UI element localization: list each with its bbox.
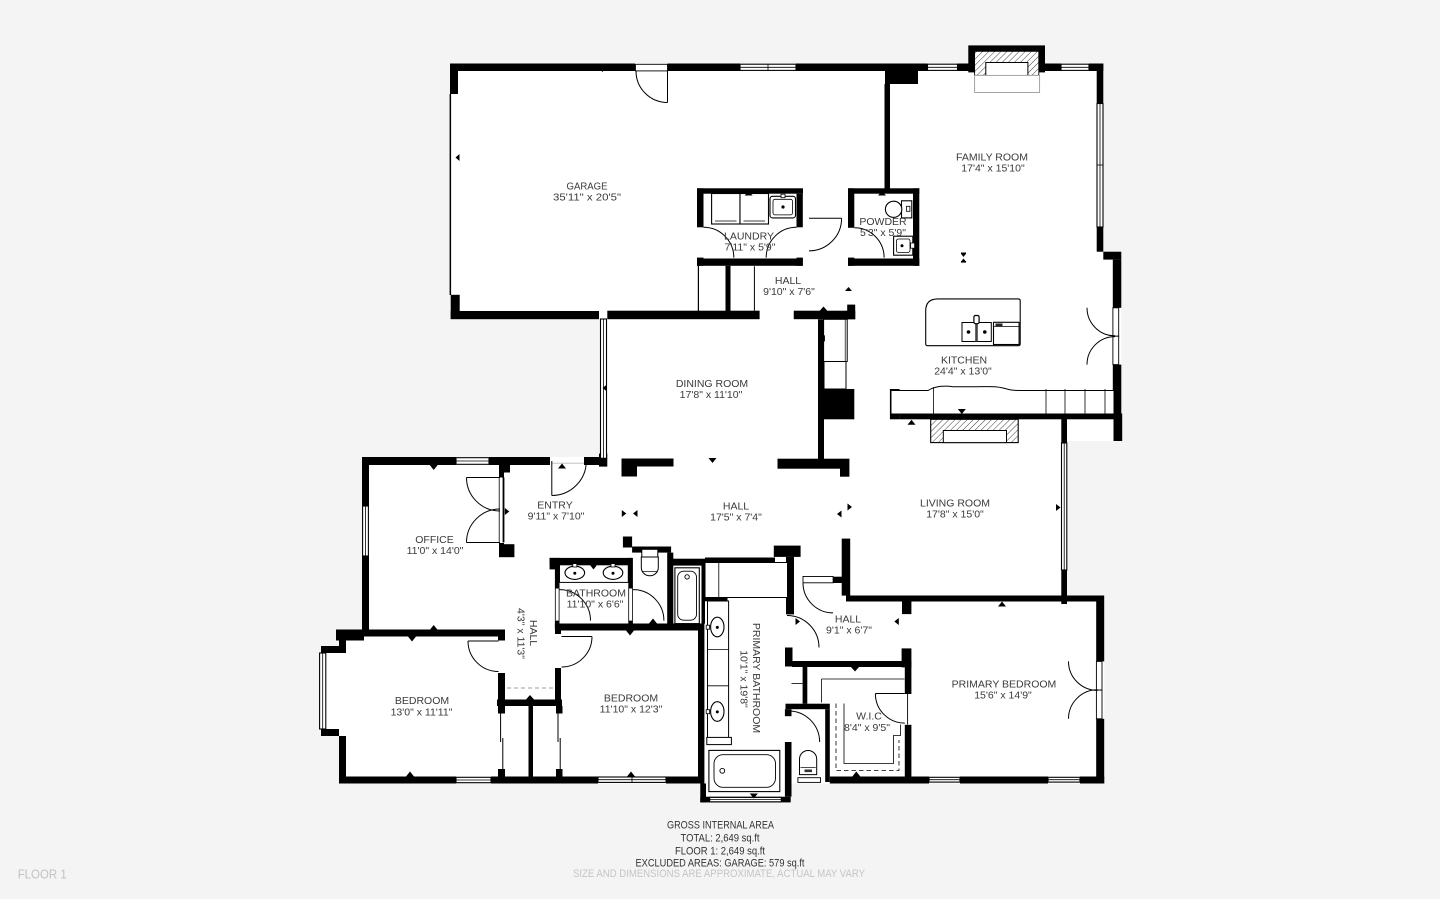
svg-text:HALL: HALL — [527, 620, 539, 646]
svg-text:17'8" x 15'0": 17'8" x 15'0" — [926, 509, 984, 521]
svg-text:35'11" x 20'5": 35'11" x 20'5" — [553, 191, 621, 203]
svg-text:15'6" x 14'9": 15'6" x 14'9" — [974, 690, 1032, 702]
svg-text:PRIMARY BATHROOM: PRIMARY BATHROOM — [750, 623, 762, 733]
svg-text:GROSS INTERNAL AREA: GROSS INTERNAL AREA — [667, 819, 775, 831]
svg-text:9'11" x 7'10": 9'11" x 7'10" — [528, 511, 585, 523]
svg-text:5'3" x 5'9": 5'3" x 5'9" — [860, 227, 906, 239]
svg-text:TOTAL: 2,649 sq.ft: TOTAL: 2,649 sq.ft — [681, 833, 760, 845]
svg-text:FLOOR 1: FLOOR 1 — [18, 867, 67, 882]
svg-text:W.I.C: W.I.C — [856, 711, 882, 723]
svg-text:8'4" x 9'5": 8'4" x 9'5" — [844, 722, 890, 734]
svg-text:11'0" x 14'0": 11'0" x 14'0" — [407, 545, 464, 557]
svg-text:4'3" x 11'3": 4'3" x 11'3" — [515, 608, 527, 659]
svg-text:24'4" x 13'0": 24'4" x 13'0" — [934, 366, 992, 378]
svg-text:11'10" x 12'3": 11'10" x 12'3" — [600, 704, 663, 716]
svg-text:9'1" x 6'7": 9'1" x 6'7" — [826, 625, 872, 637]
svg-text:17'5" x 7'4": 17'5" x 7'4" — [710, 512, 762, 524]
svg-text:9'10" x 7'6": 9'10" x 7'6" — [763, 286, 815, 298]
svg-text:17'4" x 15'10": 17'4" x 15'10" — [961, 163, 1025, 175]
svg-text:FLOOR 1: 2,649 sq.ft: FLOOR 1: 2,649 sq.ft — [675, 846, 765, 858]
svg-text:13'0" x 11'11": 13'0" x 11'11" — [391, 706, 453, 718]
svg-text:7'11" x 5'9": 7'11" x 5'9" — [725, 242, 776, 254]
svg-text:10'1" x 19'8": 10'1" x 19'8" — [738, 650, 750, 708]
svg-text:17'8" x 11'10": 17'8" x 11'10" — [680, 389, 743, 401]
svg-text:SIZE AND DIMENSIONS ARE APPROX: SIZE AND DIMENSIONS ARE APPROXIMATE, ACT… — [573, 868, 866, 880]
svg-text:11'10" x 6'6": 11'10" x 6'6" — [567, 599, 624, 611]
